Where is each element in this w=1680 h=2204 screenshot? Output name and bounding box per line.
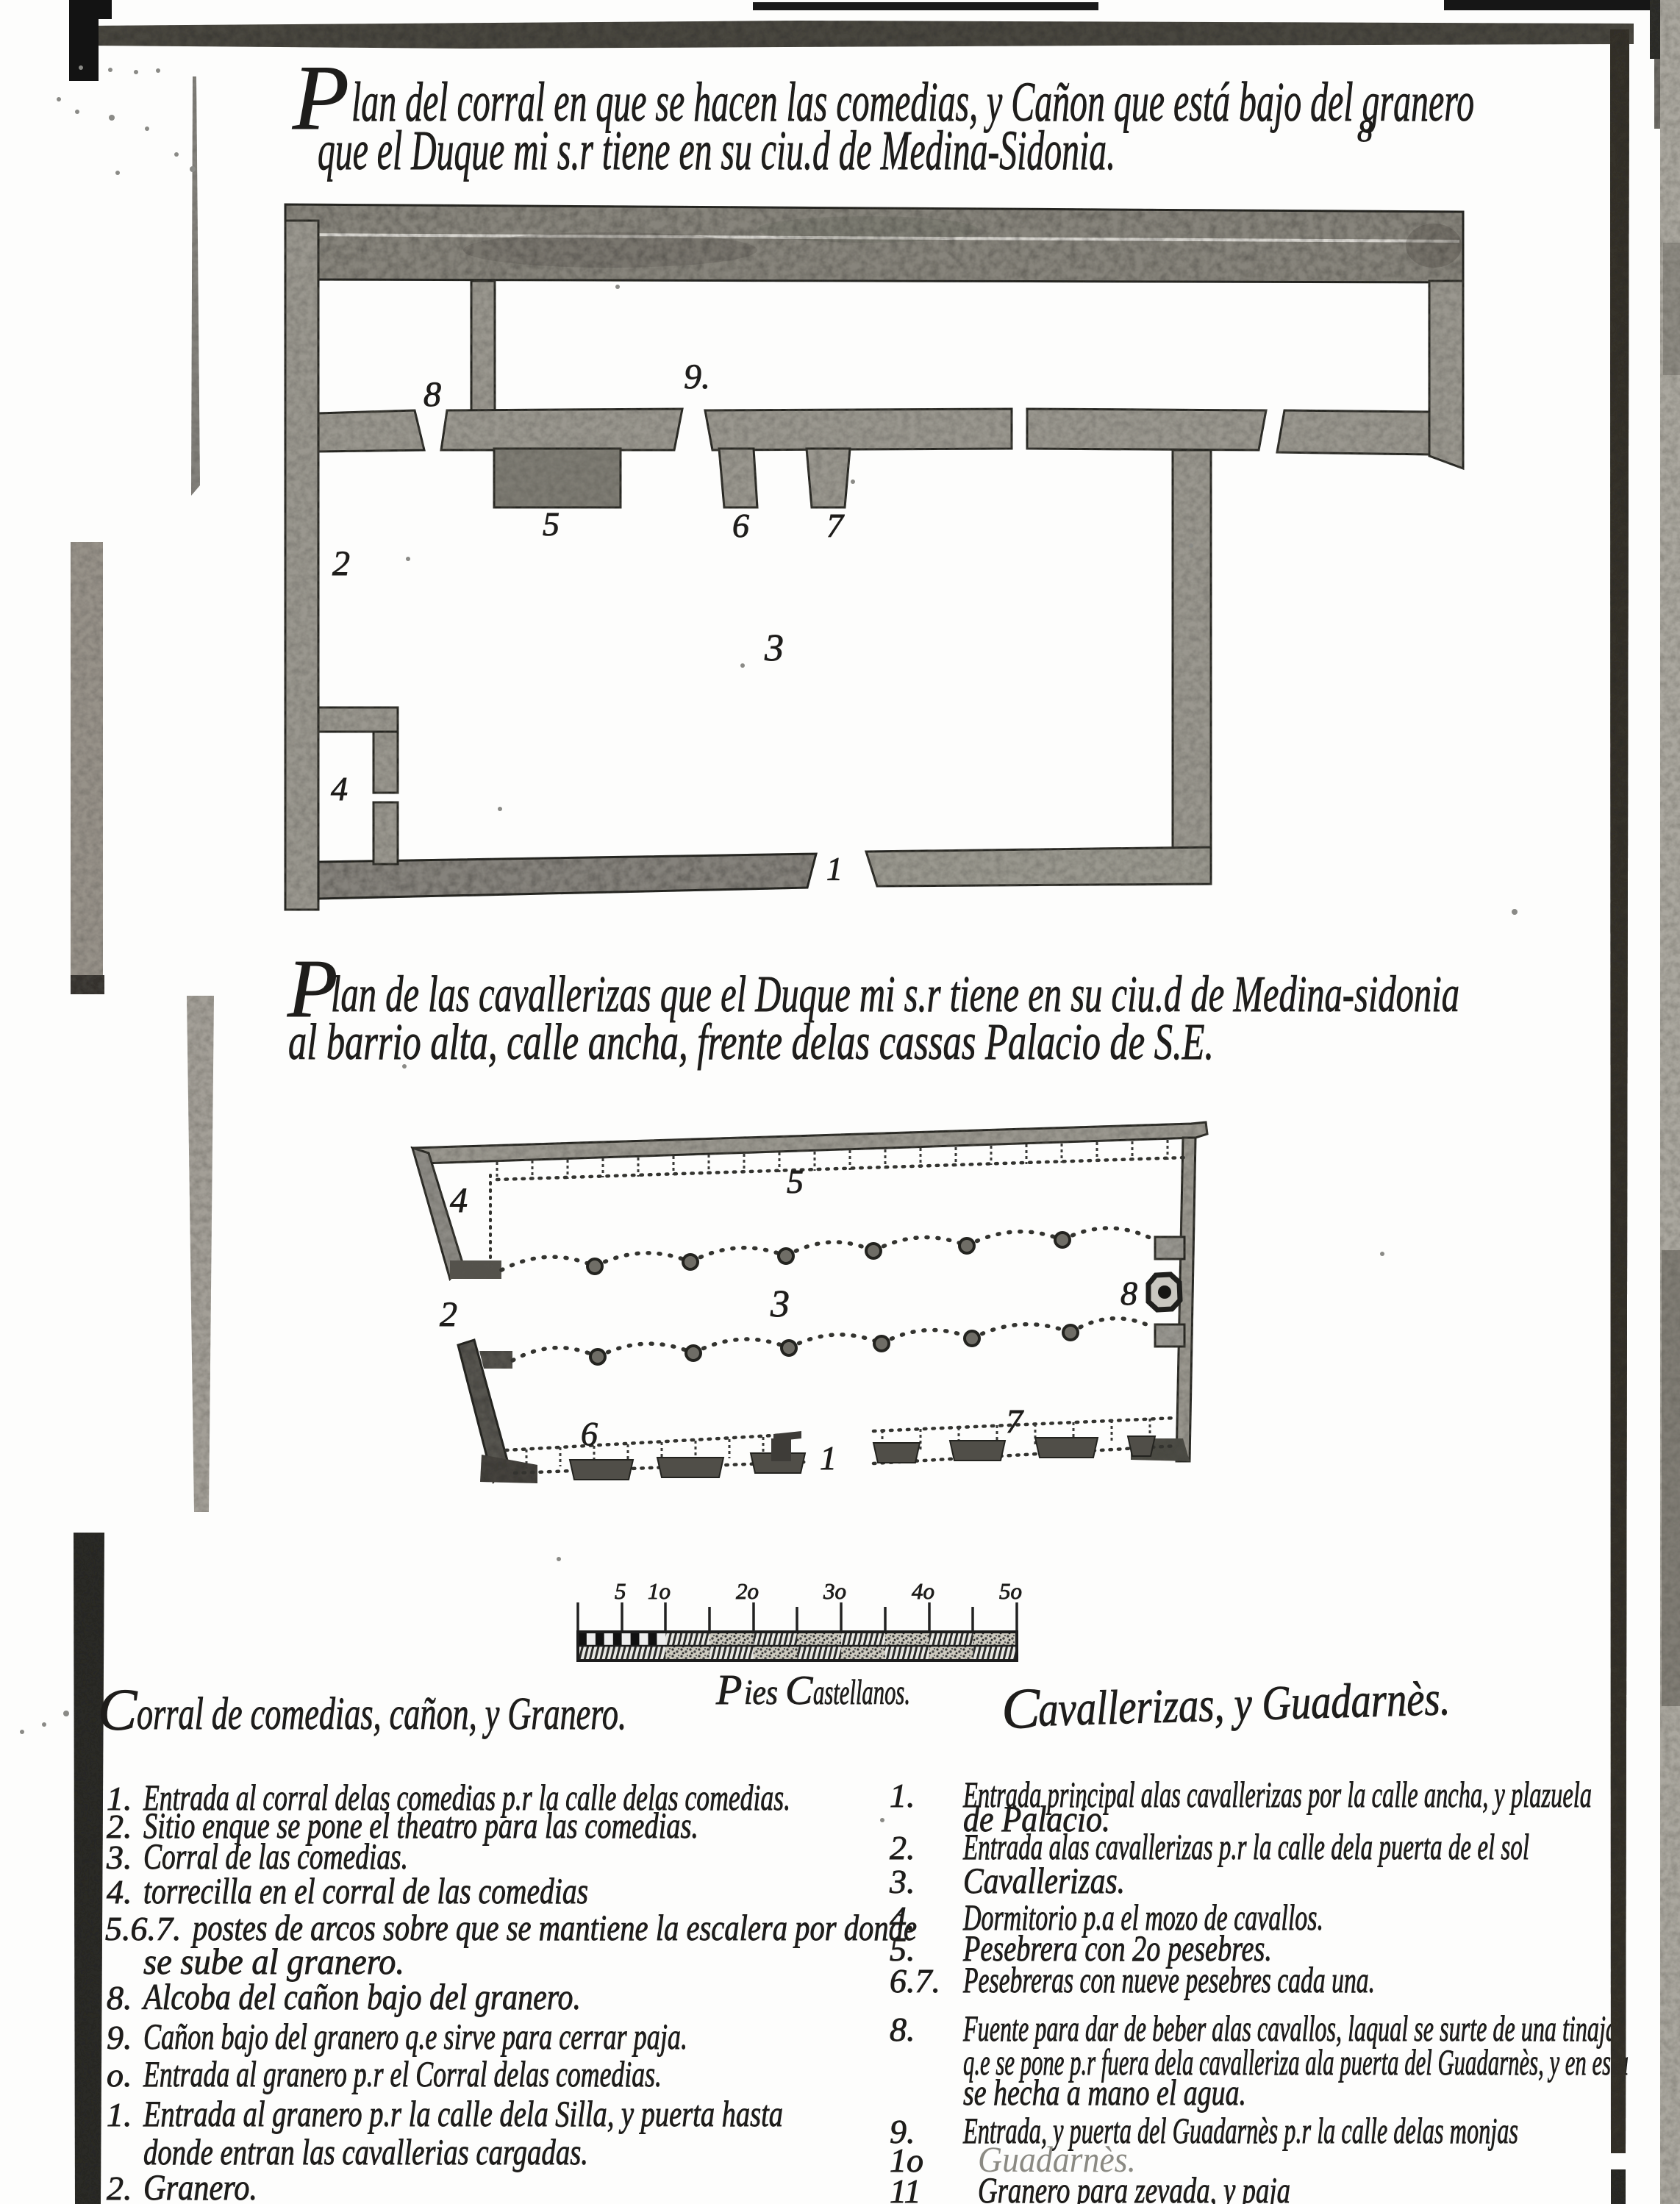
svg-text:avallerizas, y Guadarnès.: avallerizas, y Guadarnès.: [1037, 1672, 1451, 1737]
svg-text:Entrada al granero p.r el Corr: Entrada al granero p.r el Corral delas c…: [143, 2053, 662, 2094]
svg-text:Cavallerizas.: Cavallerizas.: [963, 1860, 1125, 1901]
svg-text:1o: 1o: [648, 1578, 671, 1604]
svg-text:4: 4: [331, 770, 348, 807]
svg-text:6.7.: 6.7.: [890, 1962, 940, 2000]
svg-text:1: 1: [826, 851, 843, 887]
svg-text:1.: 1.: [107, 2096, 132, 2133]
svg-text:5: 5: [615, 1578, 626, 1604]
svg-text:al barrio alta, calle ancha, f: al barrio alta, calle ancha, frente dela…: [288, 1014, 1214, 1071]
svg-text:1.: 1.: [890, 1777, 915, 1814]
svg-text:Granero para zevada, y paja: Granero para zevada, y paja: [978, 2169, 1290, 2204]
svg-text:5: 5: [543, 505, 560, 543]
svg-text:3: 3: [770, 1283, 790, 1325]
svg-text:Pesebreras con nueve pesebres: Pesebreras con nueve pesebres cada una.: [962, 1959, 1375, 2000]
svg-text:C: C: [1001, 1676, 1041, 1741]
svg-text:9.: 9.: [107, 2019, 132, 2056]
svg-text:8: 8: [1357, 115, 1373, 149]
svg-text:2: 2: [440, 1295, 457, 1334]
svg-text:3.: 3.: [889, 1863, 915, 1900]
svg-text:4: 4: [450, 1181, 468, 1220]
svg-text:5: 5: [787, 1163, 804, 1200]
svg-text:o.: o.: [107, 2056, 132, 2094]
svg-text:torrecilla en el corral de las: torrecilla en el corral de las comedias: [143, 1870, 588, 1911]
svg-text:3o: 3o: [823, 1578, 846, 1604]
svg-text:se hecha a mano el agua.: se hecha a mano el agua.: [963, 2072, 1246, 2113]
svg-text:1: 1: [820, 1439, 837, 1477]
svg-text:Entrada al granero p.r la call: Entrada al granero p.r la calle dela Sil…: [143, 2093, 783, 2134]
svg-text:que el Duque mi s.r tiene en s: que el Duque mi s.r tiene en su ciu.d de…: [318, 120, 1115, 182]
svg-text:4.: 4.: [107, 1873, 132, 1911]
svg-text:2o: 2o: [736, 1578, 759, 1604]
svg-text:7: 7: [1006, 1402, 1024, 1440]
svg-text:orral de comedias, cañon, y Gr: orral de comedias, cañon, y Granero.: [137, 1689, 626, 1739]
svg-text:Cañon bajo del granero q.e sir: Cañon bajo del granero q.e sirve para ce…: [143, 2016, 687, 2057]
svg-text:8: 8: [1120, 1274, 1137, 1312]
svg-text:C: C: [98, 1678, 138, 1743]
svg-text:C: C: [785, 1668, 813, 1713]
svg-text:P: P: [715, 1666, 742, 1713]
svg-text:6: 6: [732, 507, 749, 544]
svg-text:4o: 4o: [912, 1578, 934, 1604]
svg-text:11: 11: [890, 2172, 921, 2204]
svg-text:2: 2: [332, 544, 350, 583]
svg-text:9.: 9.: [684, 357, 710, 396]
svg-text:3.: 3.: [106, 1839, 132, 1876]
svg-text:astellanos.: astellanos.: [813, 1673, 910, 1712]
svg-text:2.: 2.: [107, 2169, 132, 2204]
svg-text:Granero.: Granero.: [143, 2166, 257, 2204]
svg-text:8.: 8.: [107, 1979, 132, 2016]
svg-text:8.: 8.: [890, 2011, 915, 2048]
svg-text:6: 6: [581, 1415, 598, 1452]
svg-text:8: 8: [423, 375, 441, 414]
svg-text:ies: ies: [744, 1673, 778, 1712]
svg-text:7: 7: [826, 507, 845, 544]
svg-text:Alcoba del cañon bajo del gran: Alcoba del cañon bajo del granero.: [141, 1976, 581, 2017]
svg-text:5o: 5o: [999, 1578, 1022, 1604]
svg-text:2.: 2.: [890, 1829, 915, 1866]
svg-text:3: 3: [764, 627, 784, 669]
